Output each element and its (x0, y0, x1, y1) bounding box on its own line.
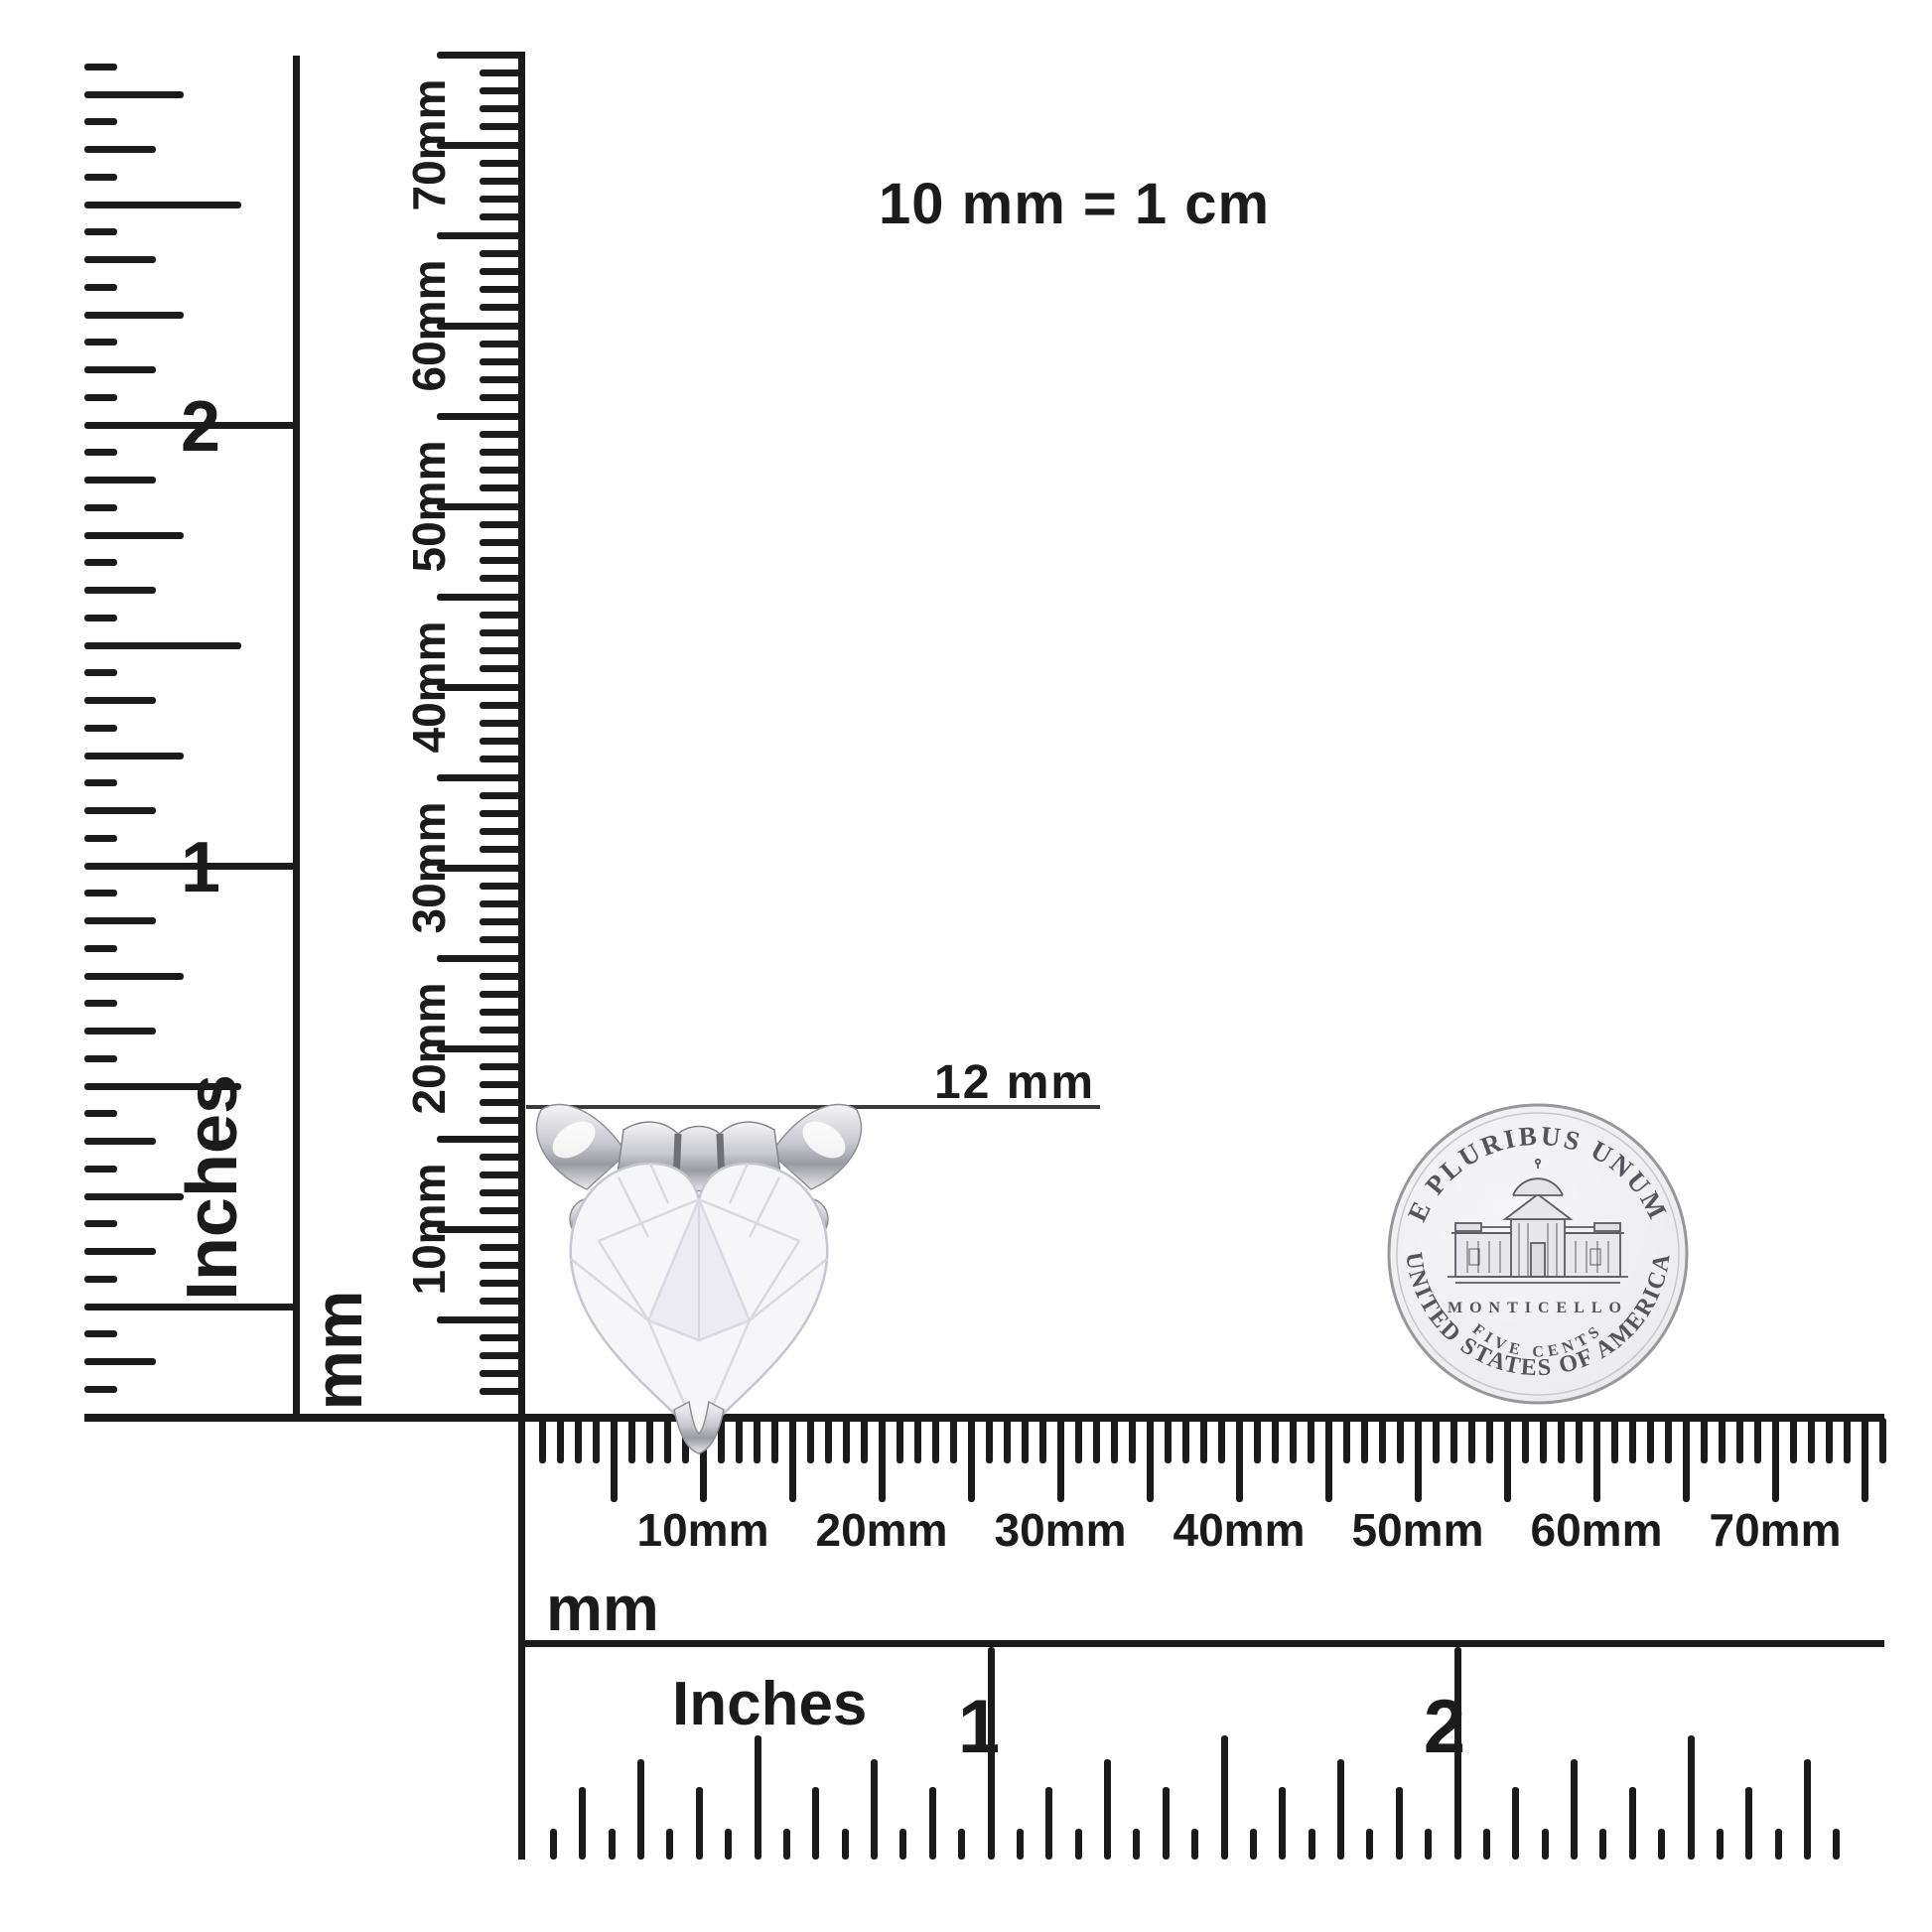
mm-tick (1022, 1418, 1029, 1463)
inch-tick (84, 753, 184, 759)
mm-tick (1701, 1418, 1708, 1463)
inch-tick (84, 1110, 117, 1117)
inch-tick (84, 917, 156, 924)
inch-tick (1163, 1787, 1170, 1860)
inch-tick (1512, 1787, 1519, 1860)
inch-tick (84, 973, 184, 980)
vertical-mm-label: 50mm (406, 427, 452, 586)
mm-tick (480, 286, 521, 293)
bottom-mm-label: 70mm (1686, 1507, 1864, 1553)
mm-tick (480, 557, 521, 564)
left-inches-ruler-baseline (293, 56, 300, 1422)
mm-tick (1075, 1418, 1082, 1463)
vertical-mm-label: 70mm (406, 66, 452, 224)
mm-tick (480, 467, 521, 474)
mm-tick (1862, 1418, 1868, 1502)
mm-tick (1522, 1418, 1529, 1463)
inch-tick (84, 1166, 117, 1173)
mm-tick (1093, 1418, 1100, 1463)
bottom-mm-label: 60mm (1507, 1507, 1686, 1553)
bottom-inches-unit-label: Inches (672, 1674, 867, 1735)
inch-tick (84, 91, 184, 98)
mm-tick (1218, 1418, 1225, 1463)
inch-tick (1045, 1787, 1052, 1860)
mm-tick (1826, 1418, 1833, 1463)
inch-tick (899, 1829, 906, 1860)
mm-tick (1111, 1418, 1118, 1463)
mm-tick (480, 69, 521, 76)
mm-tick (437, 413, 521, 420)
mm-tick (480, 358, 521, 365)
bottom-inch-number-1: 1 (943, 1690, 1015, 1765)
inch-tick (1804, 1759, 1811, 1860)
mm-tick (1808, 1418, 1815, 1463)
inch-tick (842, 1829, 849, 1860)
inch-tick (1221, 1735, 1228, 1860)
bottom-mm-label: 50mm (1328, 1507, 1507, 1553)
inch-tick (84, 1386, 117, 1393)
inch-tick (1279, 1787, 1286, 1860)
inch-tick (84, 587, 156, 594)
mm-tick (986, 1418, 993, 1463)
product-size-chart: 10mm20mm30mm40mm50mm60mm70mm 10mm20mm30m… (0, 0, 1932, 1932)
mm-tick (437, 1316, 521, 1323)
inch-tick (1745, 1787, 1752, 1860)
mm-tick (480, 756, 521, 762)
mm-tick (1361, 1418, 1368, 1463)
inch-tick (84, 504, 117, 511)
inch-tick (84, 779, 117, 786)
inch-tick (84, 394, 117, 401)
mm-tick (437, 52, 521, 59)
inch-tick (1366, 1829, 1373, 1860)
mm-tick (1057, 1418, 1064, 1502)
mm-tick (480, 268, 521, 275)
vertical-mm-unit-label: mm (305, 1281, 372, 1420)
mm-tick (480, 702, 521, 709)
inch-tick (783, 1829, 790, 1860)
mm-tick (914, 1418, 921, 1463)
inch-tick (84, 1138, 156, 1145)
inch-tick (1017, 1829, 1024, 1860)
inch-tick (84, 1193, 184, 1200)
mm-tick (1004, 1418, 1011, 1463)
mm-tick (932, 1418, 939, 1463)
mm-tick (1308, 1418, 1314, 1463)
mm-tick (1736, 1418, 1743, 1463)
inch-tick (84, 146, 156, 153)
inch-tick (1396, 1787, 1403, 1860)
mm-tick (1772, 1418, 1779, 1502)
mm-tick (1647, 1418, 1654, 1463)
mm-tick (1200, 1418, 1207, 1463)
mm-tick (480, 431, 521, 438)
inch-tick (550, 1829, 557, 1860)
inch-tick (812, 1787, 819, 1860)
inch-tick (84, 835, 117, 842)
nickel-coin: E PLURIBUS UNUM MONTICELLO FIVE CENTS (1386, 1102, 1690, 1406)
mm-tick (480, 449, 521, 456)
left-inch-number-1: 1 (165, 832, 236, 903)
scale-note: 10 mm = 1 cm (879, 176, 1270, 233)
mm-tick (480, 1298, 521, 1305)
mm-tick (480, 883, 521, 890)
mm-tick (480, 828, 521, 835)
inch-tick (1191, 1829, 1198, 1860)
mm-tick (1147, 1418, 1154, 1502)
mm-tick (480, 1027, 521, 1034)
inch-tick (84, 1000, 117, 1007)
mm-tick (480, 539, 521, 546)
inch-tick (84, 669, 117, 676)
mm-tick (950, 1418, 957, 1463)
inch-tick (755, 1735, 761, 1860)
mm-tick (480, 123, 521, 130)
mm-tick (480, 612, 521, 619)
inch-tick (84, 1220, 117, 1227)
inch-tick (1337, 1759, 1344, 1860)
vertical-mm-label: 30mm (406, 788, 452, 947)
mm-tick (480, 1352, 521, 1359)
mm-tick (480, 973, 521, 980)
inch-tick (84, 1358, 156, 1365)
vertical-mm-label: 60mm (406, 246, 452, 405)
heart-diamond-pendant (529, 1092, 869, 1471)
inch-tick (1483, 1829, 1490, 1860)
mm-tick (1379, 1418, 1386, 1463)
mm-tick (1486, 1418, 1493, 1463)
inch-tick (1629, 1787, 1636, 1860)
inch-tick (84, 312, 184, 319)
mm-tick (480, 810, 521, 817)
mm-tick (480, 1262, 521, 1269)
mm-tick (1272, 1418, 1279, 1463)
mm-tick (480, 665, 521, 672)
mm-tick (480, 304, 521, 311)
mm-tick (480, 1063, 521, 1070)
vertical-mm-label: 20mm (406, 969, 452, 1128)
inch-tick (84, 642, 241, 649)
mm-tick (1540, 1418, 1547, 1463)
vertical-mm-label: 10mm (406, 1150, 452, 1309)
mm-tick (879, 1418, 886, 1502)
mm-tick (480, 629, 521, 636)
mm-tick (1576, 1418, 1583, 1463)
inch-tick (84, 1055, 117, 1062)
mm-tick (1558, 1418, 1565, 1463)
bottom-mm-label: 40mm (1150, 1507, 1328, 1553)
mm-tick (480, 394, 521, 401)
mm-tick (1879, 1418, 1886, 1463)
inch-tick (1658, 1829, 1665, 1860)
inch-tick (1688, 1735, 1695, 1860)
inch-tick (84, 366, 156, 373)
mm-tick (480, 484, 521, 491)
inch-tick (666, 1829, 673, 1860)
mm-tick (1468, 1418, 1475, 1463)
mm-tick (480, 738, 521, 745)
mm-tick (480, 1099, 521, 1106)
inch-tick (84, 807, 156, 814)
mm-tick (480, 720, 521, 727)
mm-tick (1593, 1418, 1600, 1502)
inch-tick (84, 228, 117, 235)
inch-tick (696, 1787, 703, 1860)
mm-tick (1450, 1418, 1457, 1463)
mm-tick (480, 213, 521, 220)
inch-tick (1542, 1829, 1549, 1860)
inch-tick (84, 64, 117, 70)
mm-tick (968, 1418, 975, 1502)
inch-tick (1104, 1759, 1111, 1860)
vertical-mm-label: 40mm (406, 608, 452, 766)
mm-tick (480, 1388, 521, 1395)
measurement-label: 12 mm (934, 1058, 1095, 1108)
inch-tick (84, 945, 117, 952)
left-inches-unit-label: Inches (177, 1038, 248, 1336)
mm-tick (1844, 1418, 1851, 1463)
mm-tick (1415, 1418, 1422, 1502)
mm-tick (437, 1136, 521, 1143)
mm-tick (437, 955, 521, 962)
mm-tick (480, 1244, 521, 1251)
mm-tick (1504, 1418, 1511, 1502)
mm-tick (1611, 1418, 1618, 1463)
mm-tick (1683, 1418, 1690, 1502)
inch-tick (84, 118, 117, 125)
mm-tick (1254, 1418, 1261, 1463)
inch-tick (1833, 1829, 1840, 1860)
bottom-mm-label: 10mm (614, 1507, 792, 1553)
bottom-inches-ruler-topline (521, 1640, 1884, 1647)
inch-tick (1309, 1829, 1315, 1860)
inch-tick (84, 1276, 117, 1283)
mm-tick (480, 1009, 521, 1016)
mm-tick (1343, 1418, 1350, 1463)
inch-tick (84, 559, 117, 566)
mm-tick (1182, 1418, 1189, 1463)
inch-tick (958, 1829, 965, 1860)
mm-tick (1433, 1418, 1440, 1463)
inch-tick (1425, 1829, 1432, 1860)
inch-tick (84, 339, 117, 345)
mm-tick (1129, 1418, 1136, 1463)
bottom-inch-number-2: 2 (1409, 1690, 1480, 1765)
inch-tick (637, 1759, 644, 1860)
inch-tick (84, 174, 117, 181)
mm-tick (1754, 1418, 1761, 1463)
mm-tick (480, 87, 521, 94)
inch-tick (1250, 1829, 1257, 1860)
mm-tick (480, 792, 521, 799)
mm-tick (1165, 1418, 1172, 1463)
inch-tick (84, 697, 156, 704)
mm-tick (480, 575, 521, 582)
mm-tick (480, 918, 521, 925)
mm-tick (480, 936, 521, 943)
inch-tick (929, 1787, 936, 1860)
inch-tick (609, 1829, 616, 1860)
mm-tick (480, 250, 521, 257)
inch-tick (1571, 1759, 1578, 1860)
mm-tick (480, 900, 521, 907)
mm-tick (480, 647, 521, 654)
inch-tick (579, 1787, 586, 1860)
mm-tick (480, 1154, 521, 1161)
mm-tick (1629, 1418, 1636, 1463)
mm-tick (437, 774, 521, 781)
left-inch-number-2: 2 (165, 391, 236, 463)
mm-tick (480, 1334, 521, 1341)
mm-tick (480, 521, 521, 528)
mm-tick (480, 341, 521, 347)
mm-tick (480, 1189, 521, 1196)
inch-tick (84, 284, 117, 291)
mm-tick (480, 376, 521, 383)
inch-tick (871, 1759, 878, 1860)
mm-tick (480, 1117, 521, 1124)
mm-tick (1290, 1418, 1297, 1463)
mm-tick (480, 1370, 521, 1377)
inch-tick (84, 477, 156, 483)
inch-tick (1717, 1829, 1724, 1860)
inch-tick (1133, 1829, 1140, 1860)
mm-tick (1665, 1418, 1672, 1463)
inch-tick (725, 1829, 732, 1860)
mm-tick (437, 232, 521, 239)
mm-tick (897, 1418, 903, 1463)
mm-tick (480, 1172, 521, 1178)
inch-tick (84, 256, 156, 263)
mm-tick (480, 196, 521, 203)
inch-tick (84, 1330, 117, 1337)
bottom-mm-label: 20mm (792, 1507, 971, 1553)
inch-tick (84, 202, 241, 208)
mm-tick (1236, 1418, 1243, 1502)
inch-tick (1075, 1829, 1082, 1860)
mm-tick (480, 1081, 521, 1088)
mm-tick (1039, 1418, 1046, 1463)
inch-tick (1775, 1829, 1782, 1860)
inch-tick (84, 1028, 156, 1035)
mm-tick (480, 105, 521, 112)
mm-tick (1397, 1418, 1404, 1463)
inch-tick (84, 532, 184, 539)
inch-tick (84, 615, 117, 621)
mm-tick (480, 991, 521, 998)
inch-tick (84, 725, 117, 732)
mm-tick (480, 160, 521, 167)
mm-tick (1719, 1418, 1725, 1463)
bottom-mm-unit-label: mm (546, 1577, 659, 1640)
inch-tick (84, 1248, 156, 1255)
coin-building-label: MONTICELLO (1448, 1300, 1628, 1316)
mm-tick (1325, 1418, 1332, 1502)
mm-tick (1790, 1418, 1797, 1463)
inch-tick (84, 890, 117, 897)
bottom-mm-label: 30mm (971, 1507, 1150, 1553)
inch-tick (84, 449, 117, 456)
mm-tick (480, 1207, 521, 1214)
mm-tick (437, 594, 521, 601)
inch-tick (1599, 1829, 1606, 1860)
mm-tick (480, 178, 521, 185)
mm-tick (480, 846, 521, 853)
mm-tick (480, 1280, 521, 1287)
